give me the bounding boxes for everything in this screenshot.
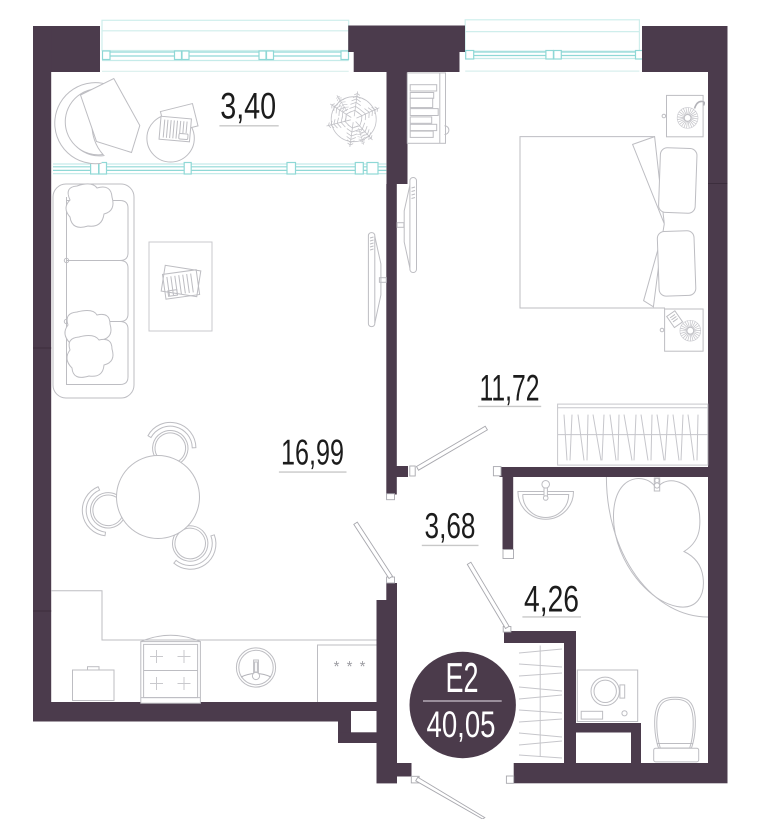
svg-text:11,72: 11,72: [480, 367, 540, 408]
svg-text:40,05: 40,05: [427, 704, 496, 745]
svg-text:*: *: [360, 659, 366, 676]
svg-text:3,68: 3,68: [425, 505, 476, 546]
svg-text:E2: E2: [446, 654, 479, 701]
svg-text:3,40: 3,40: [220, 86, 276, 127]
svg-text:*: *: [334, 659, 340, 676]
svg-text:16,99: 16,99: [281, 431, 344, 472]
svg-text:*: *: [347, 659, 353, 676]
svg-text:4,26: 4,26: [524, 579, 579, 620]
